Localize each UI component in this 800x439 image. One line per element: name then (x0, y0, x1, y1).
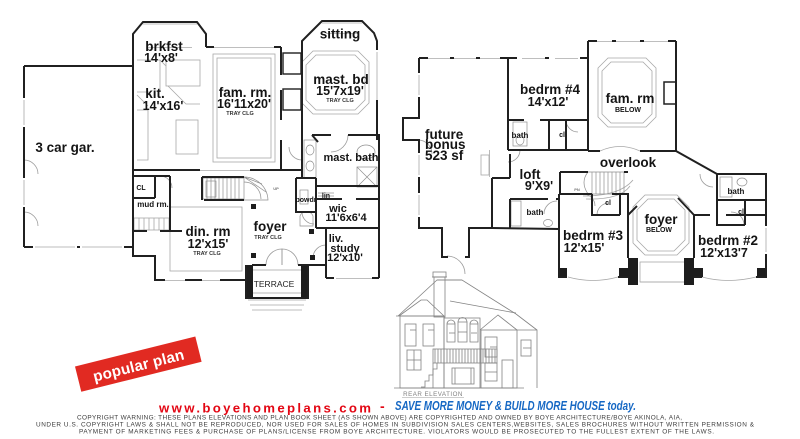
svg-text:12'x13'7: 12'x13'7 (700, 246, 748, 260)
svg-text:12'x15': 12'x15' (188, 237, 229, 251)
svg-text:14'x12': 14'x12' (528, 95, 569, 109)
svg-text:overlook: overlook (600, 155, 657, 170)
svg-text:TRAY CLG: TRAY CLG (326, 98, 354, 104)
svg-text:12'x10': 12'x10' (327, 252, 363, 264)
svg-text:15'7x19': 15'7x19' (316, 84, 364, 98)
svg-text:TERRACE: TERRACE (254, 279, 295, 289)
svg-text:TRAY CLG: TRAY CLG (226, 111, 254, 117)
svg-text:11'6x6'4: 11'6x6'4 (325, 212, 367, 224)
svg-text:bath: bath (512, 131, 529, 140)
svg-text:sitting: sitting (320, 27, 361, 42)
svg-text:14'x8': 14'x8' (144, 51, 178, 65)
svg-text:3 car gar.: 3 car gar. (35, 140, 94, 155)
svg-text:TRAY CLG: TRAY CLG (193, 251, 221, 257)
svg-text:UNDER U.S. COPYRIGHT LAWS & SH: UNDER U.S. COPYRIGHT LAWS & SHALL NOT BE… (36, 422, 755, 429)
svg-text:PN: PN (574, 187, 580, 192)
svg-text:523 sf: 523 sf (425, 148, 464, 163)
svg-text:mast. bath: mast. bath (323, 152, 378, 164)
svg-text:CL: CL (136, 185, 146, 192)
svg-text:cl: cl (605, 200, 611, 207)
svg-text:SAVE MORE MONEY & BUILD MORE H: SAVE MORE MONEY & BUILD MORE HOUSE today… (395, 399, 636, 413)
svg-text:cl: cl (559, 132, 565, 139)
svg-text:UP: UP (273, 186, 279, 191)
svg-text:BELOW: BELOW (615, 107, 641, 114)
svg-text:BELOW: BELOW (646, 227, 672, 234)
svg-text:16'11x20': 16'11x20' (217, 97, 271, 111)
svg-text:bath: bath (728, 187, 745, 196)
svg-text:PAYMENT OF MARKETING FEES & PU: PAYMENT OF MARKETING FEES & PURCHASE OF … (79, 429, 714, 436)
svg-text:foyer: foyer (253, 219, 287, 234)
svg-text:COPYRIGHT WARNING: THESE PLANS: COPYRIGHT WARNING: THESE PLANS ELEVATION… (77, 415, 682, 422)
svg-text:9'X9': 9'X9' (525, 179, 553, 193)
svg-text:REAR ELEVATION: REAR ELEVATION (403, 391, 463, 398)
svg-text:12'x15': 12'x15' (564, 241, 605, 255)
svg-text:cl: cl (738, 209, 744, 216)
svg-text:fam. rm: fam. rm (606, 91, 655, 106)
svg-text:14'x16': 14'x16' (143, 99, 184, 113)
svg-text:mud rm.: mud rm. (137, 200, 169, 209)
svg-text:www.boyehomeplans.com: www.boyehomeplans.com (158, 401, 371, 416)
svg-text:lin: lin (322, 193, 330, 200)
svg-text:bath: bath (527, 208, 544, 217)
svg-text:powdr: powdr (296, 197, 317, 204)
svg-text:foyer: foyer (644, 212, 678, 227)
svg-text:-: - (380, 398, 385, 414)
svg-text:TRAY CLG: TRAY CLG (254, 235, 282, 241)
